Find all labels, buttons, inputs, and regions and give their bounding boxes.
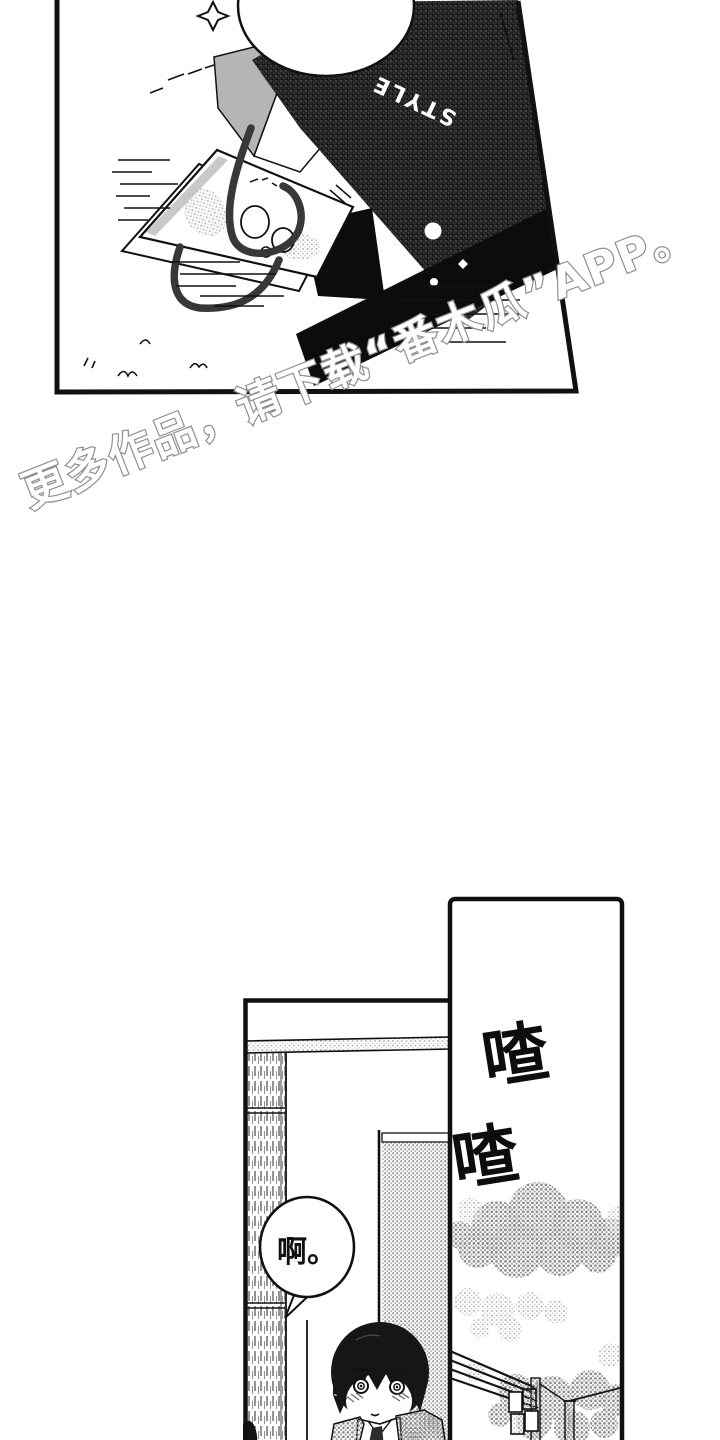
utility-pole-right <box>563 1401 576 1440</box>
door-top-rail <box>382 1133 453 1142</box>
manga-page-art: STYLE <box>0 0 720 1440</box>
dot-small-icon <box>430 278 438 286</box>
speech-bubble-text: 啊。 <box>277 1235 337 1270</box>
dot-large-icon <box>425 223 442 240</box>
panel-bottom-left: 啊。 <box>243 998 455 1440</box>
sfx-text-1: 喳 <box>477 1012 555 1099</box>
cover-doodle-1 <box>241 206 269 238</box>
manga-page: STYLE <box>0 0 720 1440</box>
panel-bottom-right: 喳 喳 <box>446 897 634 1440</box>
sfx-text-2: 喳 <box>447 1114 525 1201</box>
